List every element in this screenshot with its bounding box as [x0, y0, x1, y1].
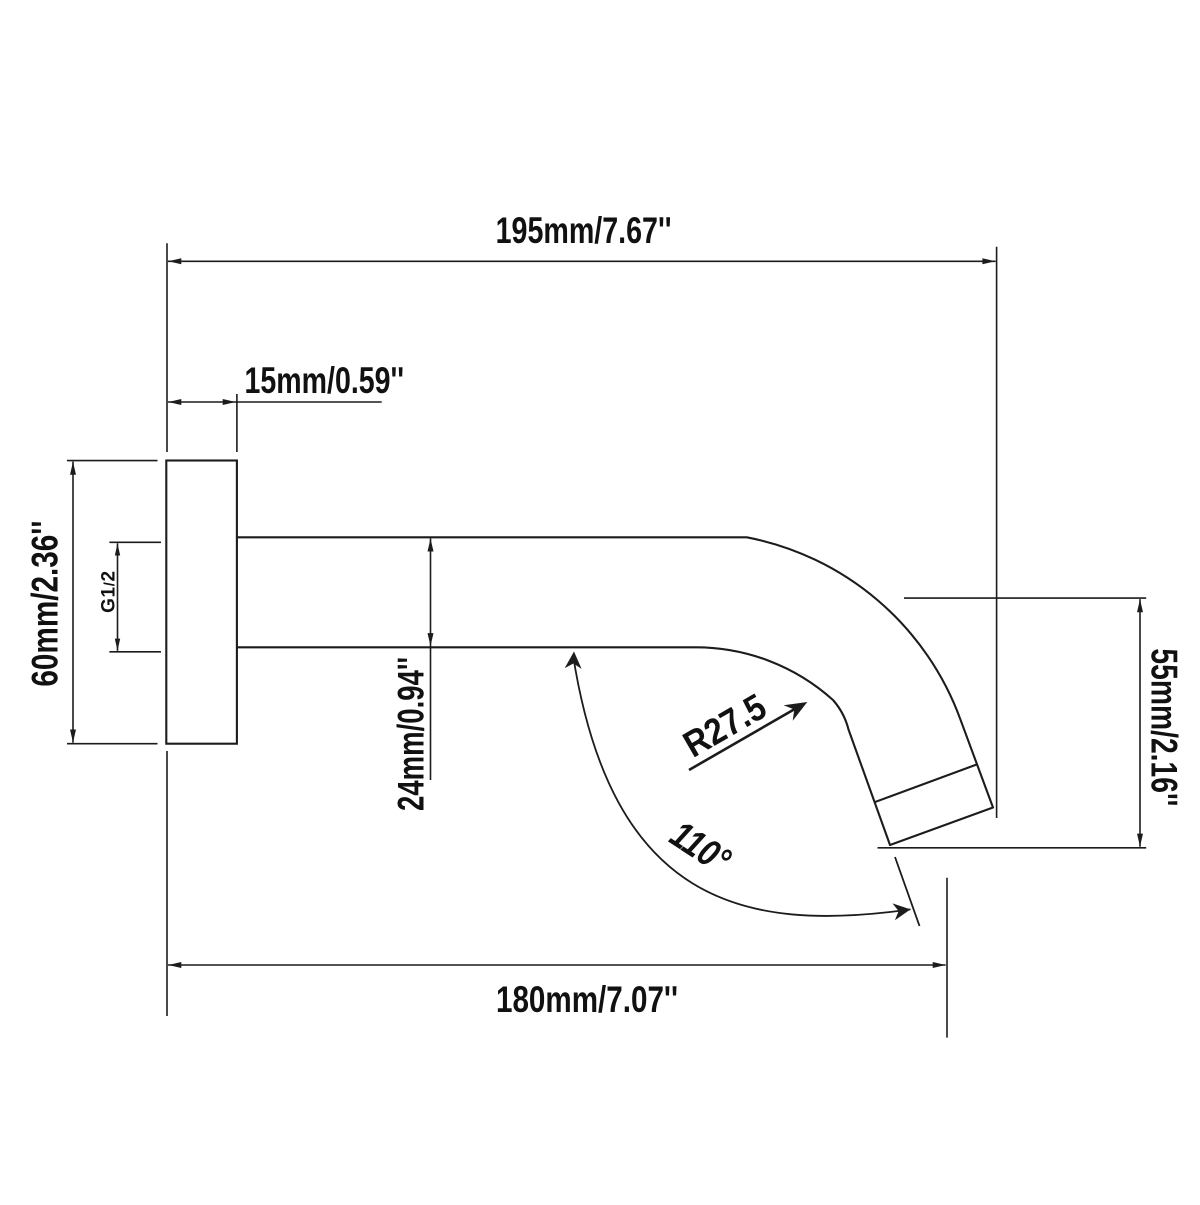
svg-text:60mm/2.36'': 60mm/2.36'' [25, 521, 66, 687]
svg-text:15mm/0.59'': 15mm/0.59'' [245, 360, 405, 401]
svg-text:195mm/7.67'': 195mm/7.67'' [496, 210, 672, 251]
svg-text:24mm/0.94'': 24mm/0.94'' [391, 657, 432, 811]
svg-text:55mm/2.16'': 55mm/2.16'' [1144, 648, 1185, 806]
svg-text:180mm/7.07'': 180mm/7.07'' [496, 979, 678, 1020]
svg-text:G1/2: G1/2 [98, 570, 119, 613]
